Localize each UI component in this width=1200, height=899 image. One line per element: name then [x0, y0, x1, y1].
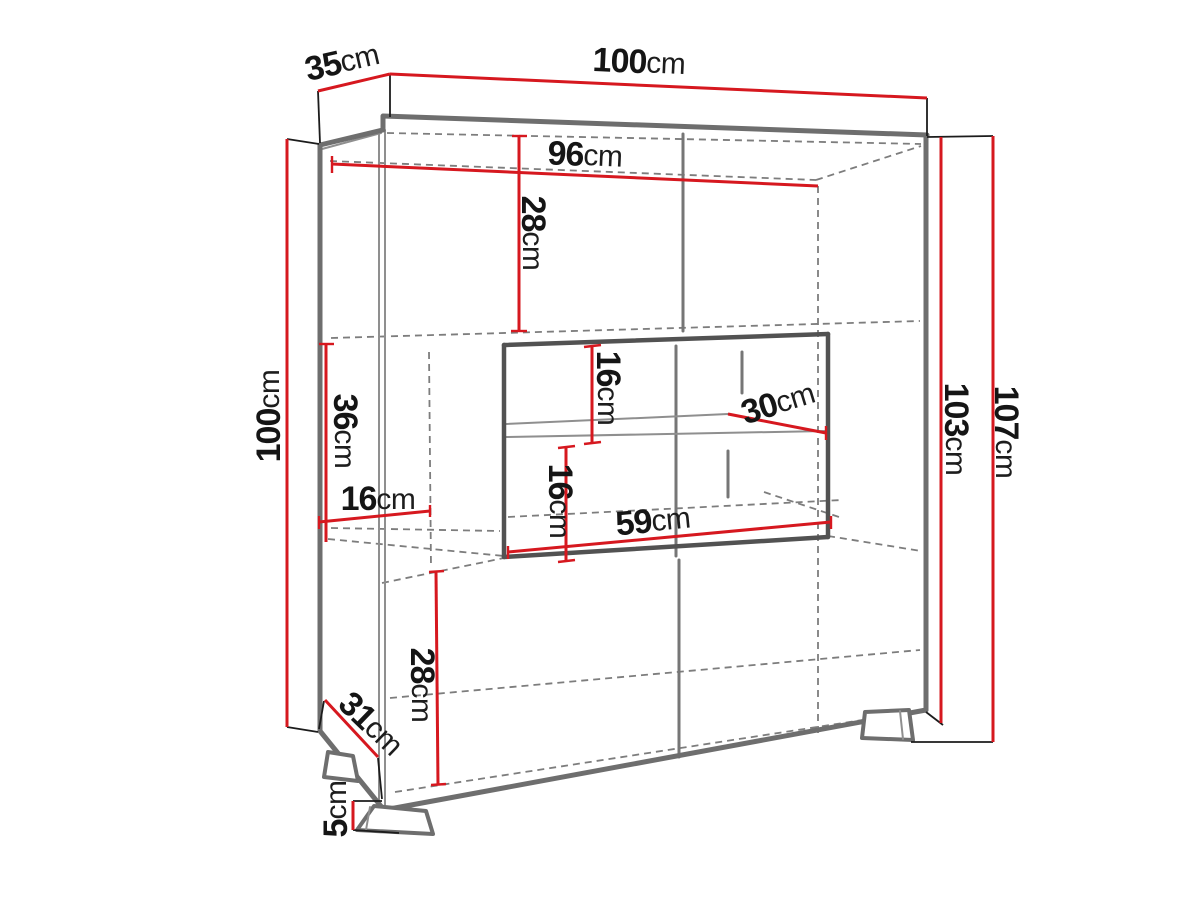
- ceiling-right-dashed-line: [816, 146, 921, 180]
- left-partition-dashed-line: [429, 352, 431, 568]
- label-top-section-height: 28cm: [514, 196, 552, 271]
- tick-16n1-upper: [584, 345, 601, 347]
- right-height-top-extension: [927, 136, 993, 137]
- niche-floor-right-dashed-line: [764, 492, 842, 518]
- left-shelf-back-dashed-line: [331, 528, 500, 531]
- label-left-height: 100cm: [250, 370, 288, 463]
- tick-16n1-lower: [584, 442, 601, 444]
- glass-shelf-front-edge: [506, 431, 826, 437]
- cabinet-bottom-edge: [384, 710, 926, 810]
- label-depth-top: 35cm: [301, 35, 382, 89]
- label-right-body-height: 103cm: [937, 383, 975, 476]
- label-right-total-height: 107cm: [987, 386, 1025, 479]
- tick-16n2-lower: [558, 560, 575, 562]
- depth-top-left-extension: [318, 91, 320, 143]
- left-height-top-extension: [287, 139, 319, 144]
- cabinet-dimension-drawing: 35cm 100cm 96cm 28cm 100cm 36cm 16cm 16c…: [0, 0, 1200, 899]
- label-width-top: 100cm: [592, 41, 686, 83]
- label-niche-upper-height: 16cm: [589, 351, 627, 426]
- tick-16n2-upper: [558, 446, 575, 448]
- ceiling-front-dashed-line: [387, 133, 921, 144]
- tick-28bottom-upper: [429, 571, 444, 572]
- front-right-foot: [862, 710, 913, 740]
- left-height-bottom-extension: [287, 727, 318, 732]
- bottom-section-back-dashed-line: [390, 650, 920, 698]
- label-middle-left-height: 36cm: [326, 394, 364, 469]
- niche-top-edge: [504, 334, 828, 345]
- cabinet-top-edge: [320, 116, 927, 145]
- left-shelf-mid-dashed-line: [328, 539, 504, 556]
- top-section-shelf-dashed-line: [331, 321, 920, 338]
- niche-corner-to-right-wall-dashed-line: [828, 536, 921, 551]
- dimension-diagram-canvas: 35cm 100cm 96cm 28cm 100cm 36cm 16cm 16c…: [0, 0, 1200, 899]
- label-interior-width: 96cm: [547, 134, 623, 175]
- label-bottom-section-height: 28cm: [403, 648, 441, 723]
- tick-28bottom-lower: [431, 784, 446, 785]
- label-niche-lower-height: 16cm: [541, 464, 579, 539]
- back-left-foot: [324, 752, 358, 781]
- label-bottom-depth: 31cm: [331, 684, 411, 763]
- label-left-shelf-width: 16cm: [341, 480, 416, 518]
- label-feet-height: 5cm: [317, 781, 355, 838]
